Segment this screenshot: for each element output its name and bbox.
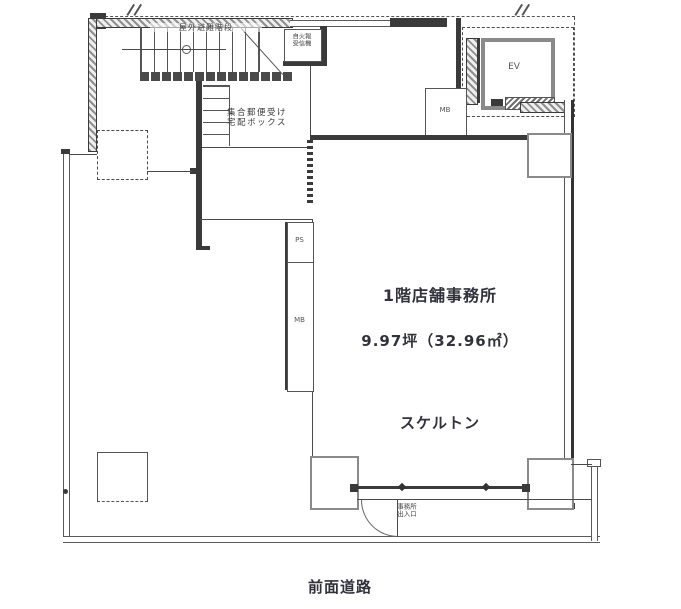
- boundary-right-cap: [587, 459, 601, 467]
- unit-area: 9.97坪（32.96㎡）: [325, 330, 555, 351]
- square-bottom-left: [97, 452, 148, 502]
- storefront-end-left: [350, 484, 358, 492]
- stair-left-wall: [88, 18, 97, 152]
- mailroom-bottom-line: [200, 219, 312, 220]
- entrance-window-top: [290, 20, 392, 27]
- meter-box-upper-label: MB: [425, 106, 465, 114]
- unit-condition: スケルトン: [355, 412, 525, 433]
- storefront-marker-1: [398, 483, 406, 491]
- ev-label: EV: [481, 62, 547, 72]
- column-bottom-right: [527, 458, 574, 510]
- mailbox-label: 集合郵便受け 宅配ボックス: [207, 109, 307, 129]
- square-link-line-right: [147, 171, 192, 172]
- stair-direction-line: [122, 49, 226, 50]
- unit-title-text: 1階店舗事務所: [383, 286, 497, 305]
- stair-direction-circle: [182, 45, 191, 54]
- meter-box-upper-text: MB: [440, 106, 451, 114]
- storefront-marker-2: [482, 483, 490, 491]
- wall-mailroom-foot: [196, 246, 210, 250]
- meter-box-lower-text: MB: [294, 316, 305, 324]
- column-bottom-left: [310, 456, 359, 510]
- main-room-left-wall-upper: [307, 140, 313, 205]
- front-road-label: 前面道路: [270, 576, 410, 597]
- unit-area-text: 9.97坪（32.96㎡）: [361, 332, 518, 350]
- stair-label: 屋外避難階段: [150, 23, 262, 32]
- entrance-label: 事務所 出入口: [389, 503, 424, 518]
- ev-left-dark-line: [477, 38, 480, 103]
- site-boundary-left: [63, 152, 70, 542]
- site-boundary-right-dashed: [574, 17, 575, 117]
- column-top-right: [527, 133, 572, 178]
- fire-alarm-label: 自火報 受信機: [288, 33, 316, 47]
- mailroom-divider-line: [202, 147, 310, 148]
- site-boundary-top-dashed: [95, 16, 575, 17]
- wall-mailroom-top: [196, 145, 198, 147]
- storefront-end-right: [522, 484, 530, 492]
- site-boundary-right-lower: [591, 463, 598, 541]
- meter-box-lower-label: MB: [287, 316, 312, 324]
- entrance-top-wall: [390, 18, 447, 27]
- entrance-line2: 出入口: [389, 510, 424, 517]
- boundary-break-mark-left2: [133, 4, 141, 16]
- wall-vertical-mailroom: [196, 81, 202, 249]
- ev-sill-block: [491, 99, 503, 106]
- wall-below-ev: [520, 102, 567, 113]
- unit-condition-text: スケルトン: [400, 414, 480, 432]
- pipe-space-label: PS: [287, 236, 312, 244]
- right-wall-connector: [571, 464, 592, 465]
- front-road-text: 前面道路: [308, 578, 372, 596]
- stair-label-text: 屋外避難階段: [179, 23, 233, 32]
- stair-lower-wall-band: [140, 72, 293, 81]
- unit-title: 1階店舗事務所: [330, 282, 550, 306]
- wall-thin-hall-left: [310, 62, 311, 137]
- fire-alarm-line2: 受信機: [288, 40, 316, 47]
- floor-plan: 屋外避難階段 自火報 受信機 集合郵便受け 宅配ボックス EV MB: [0, 0, 681, 609]
- storefront-line: [355, 486, 529, 489]
- boundary-left-dot: [63, 489, 68, 494]
- square-link-line-left: [69, 154, 97, 155]
- pipe-space-text: PS: [295, 236, 304, 244]
- ev-label-text: EV: [508, 62, 520, 72]
- meter-box-lower: [287, 262, 314, 392]
- dashed-square-upper-left: [97, 130, 148, 180]
- mailbox-line2: 宅配ボックス: [207, 119, 307, 129]
- site-boundary-bottom: [63, 536, 600, 543]
- boundary-break-mark-right2: [521, 4, 529, 16]
